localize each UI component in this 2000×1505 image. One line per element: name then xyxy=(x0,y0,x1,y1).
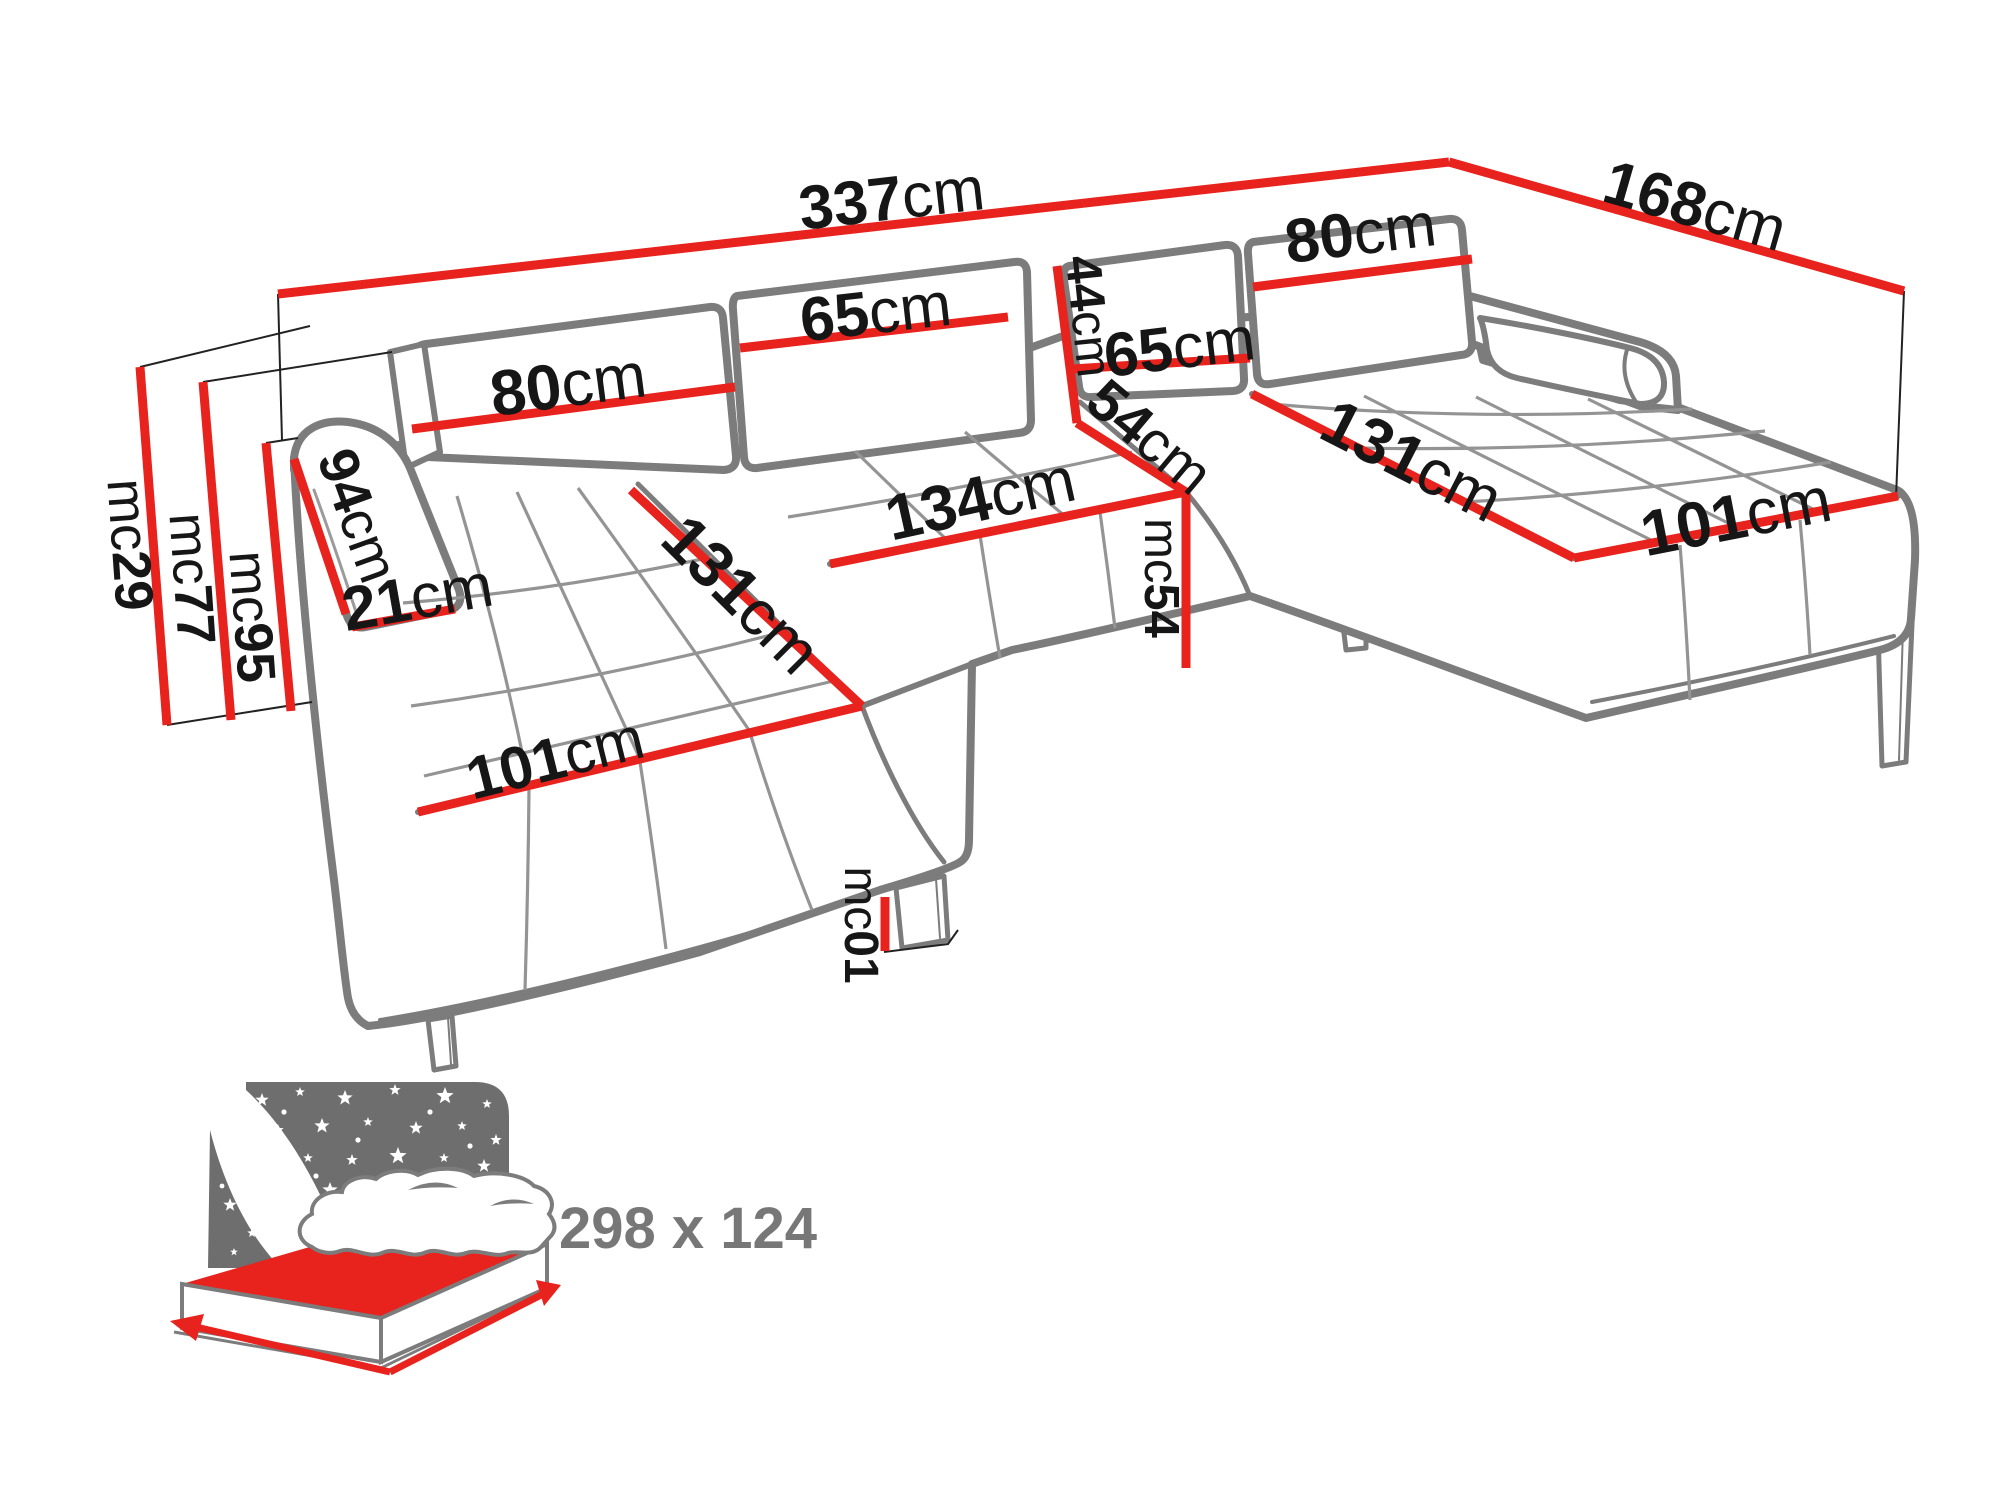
svg-text:mc54: mc54 xyxy=(1134,518,1188,638)
svg-text:mc95: mc95 xyxy=(217,549,286,685)
svg-text:mc01: mc01 xyxy=(834,866,887,983)
svg-text:mc77: mc77 xyxy=(157,511,226,647)
svg-text:298 x 124: 298 x 124 xyxy=(559,1196,817,1261)
svg-text:mc29: mc29 xyxy=(95,477,164,613)
